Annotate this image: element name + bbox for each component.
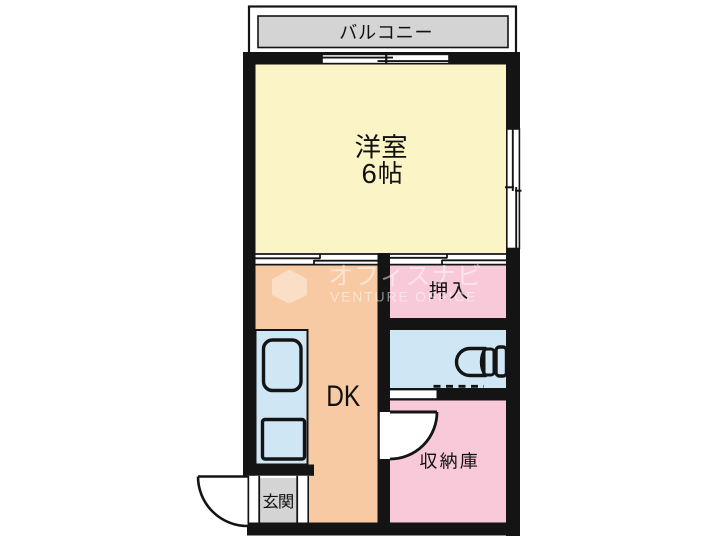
svg-text:VENTURE OFFICE: VENTURE OFFICE	[330, 288, 477, 304]
svg-text:6: 6	[362, 158, 377, 189]
svg-text:DK: DK	[326, 380, 360, 413]
